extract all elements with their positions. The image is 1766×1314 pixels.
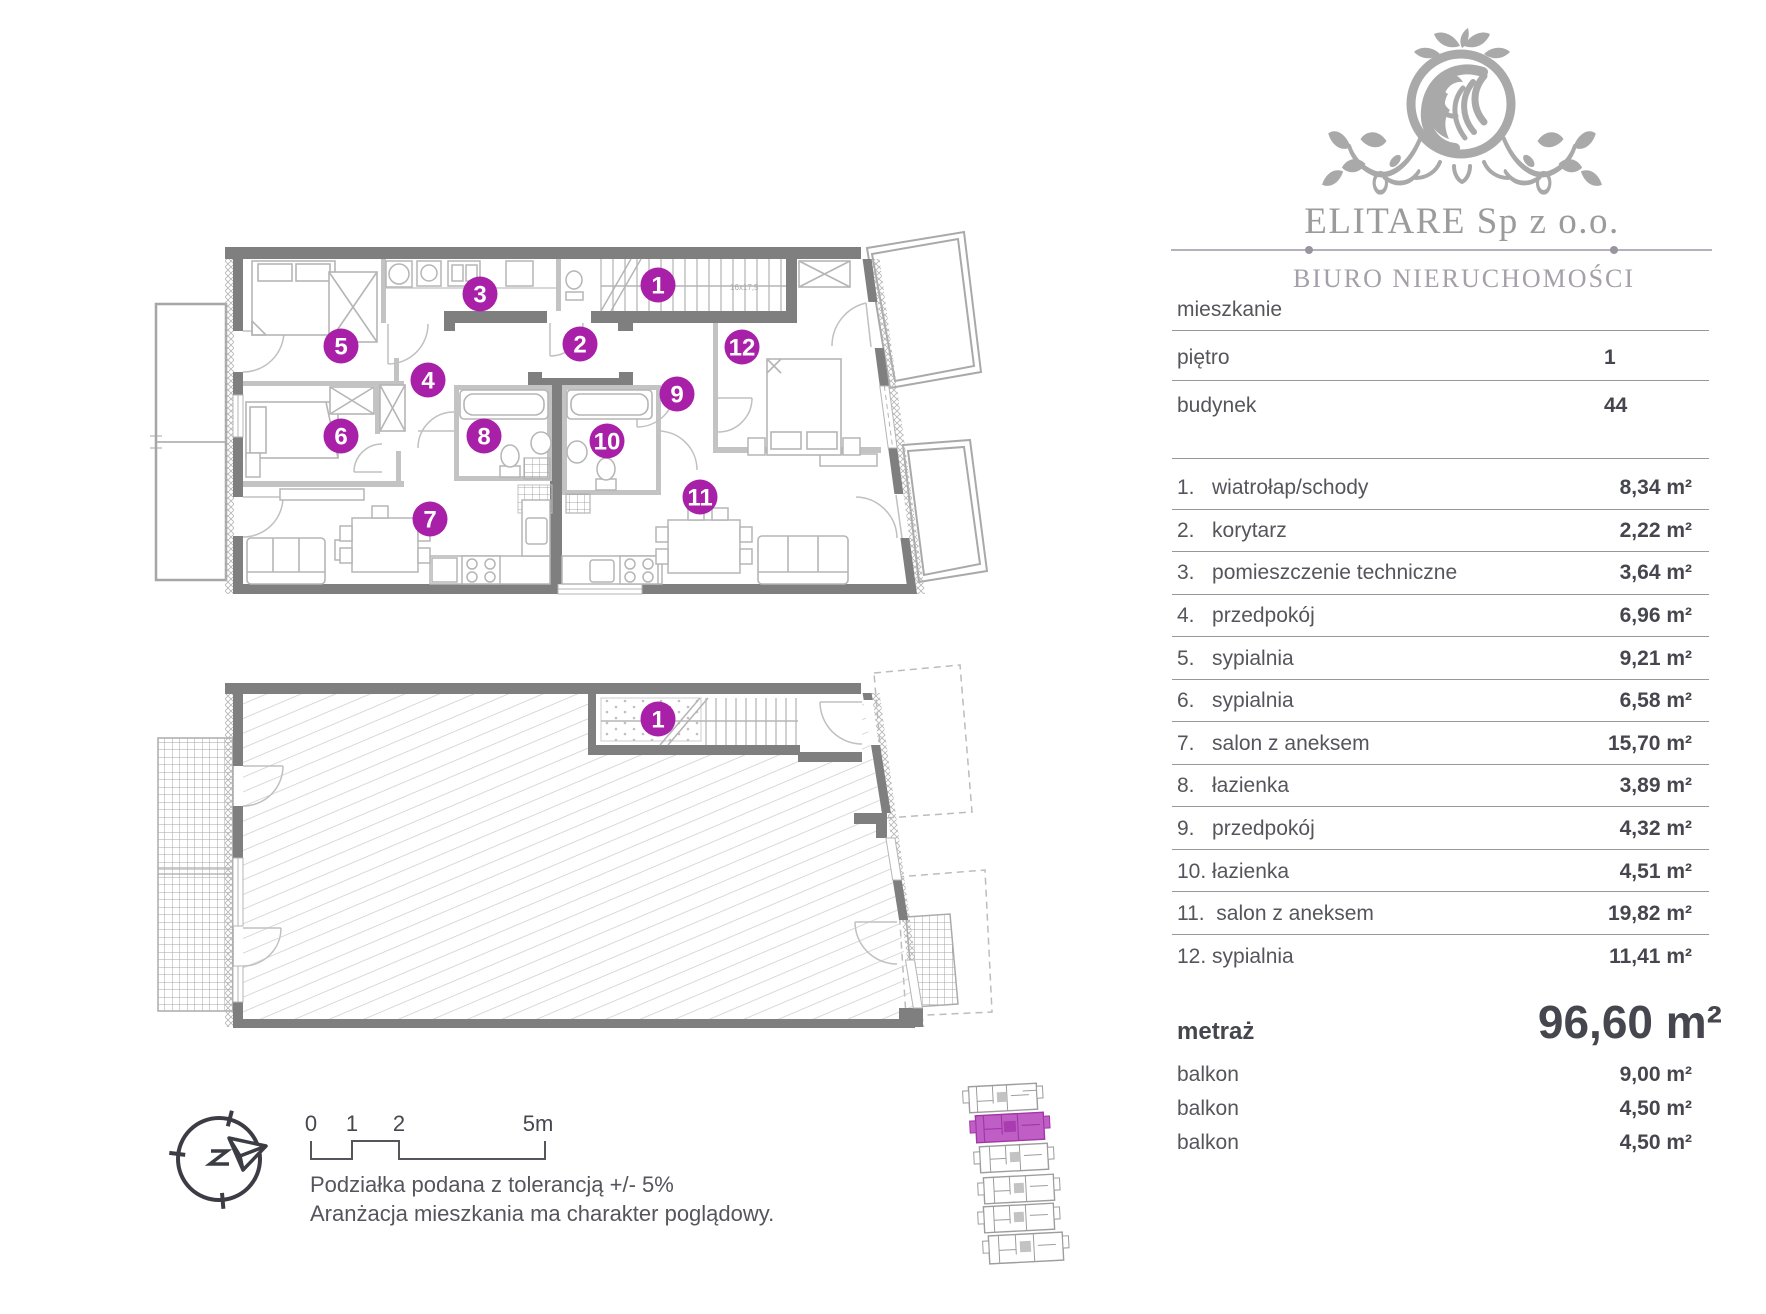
svg-text:3: 3	[473, 282, 486, 309]
svg-text:16x17,5: 16x17,5	[730, 283, 759, 292]
svg-text:Podziałka podana z tolerancją: Podziałka podana z tolerancją +/- 5%	[310, 1172, 674, 1197]
svg-text:4: 4	[421, 368, 435, 395]
svg-text:7: 7	[423, 507, 436, 534]
svg-text:1: 1	[651, 707, 664, 734]
svg-text:10: 10	[594, 429, 621, 456]
svg-text:0: 0	[305, 1111, 317, 1136]
svg-text:8: 8	[477, 424, 490, 451]
svg-text:1: 1	[346, 1111, 358, 1136]
svg-text:Aranżacja mieszkania ma charak: Aranżacja mieszkania ma charakter pogląd…	[310, 1201, 774, 1226]
svg-text:12: 12	[729, 335, 756, 362]
svg-text:6: 6	[334, 424, 347, 451]
svg-text:11: 11	[687, 485, 712, 512]
svg-text:9: 9	[670, 382, 683, 409]
svg-text:5m: 5m	[523, 1111, 554, 1136]
svg-text:2: 2	[573, 332, 586, 359]
svg-text:ELITARE Sp z o.o.: ELITARE Sp z o.o.	[1304, 201, 1619, 242]
svg-text:2: 2	[393, 1111, 405, 1136]
svg-text:5: 5	[334, 334, 347, 361]
svg-text:BIURO NIERUCHOMOŚCI: BIURO NIERUCHOMOŚCI	[1293, 264, 1635, 293]
svg-text:1: 1	[651, 273, 664, 300]
